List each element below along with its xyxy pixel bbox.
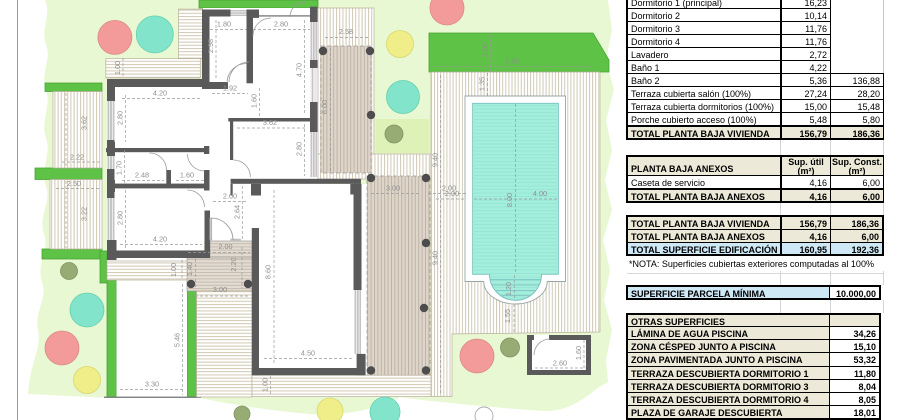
svg-text:2.00: 2.00 [481, 43, 490, 57]
svg-text:2.20: 2.20 [229, 257, 238, 271]
svg-text:7.55: 7.55 [505, 57, 519, 66]
svg-text:5.46: 5.46 [173, 333, 182, 347]
svg-text:6.00: 6.00 [320, 100, 329, 114]
svg-text:1.55: 1.55 [503, 309, 512, 323]
svg-text:1.60: 1.60 [250, 94, 259, 108]
svg-text:2.58: 2.58 [339, 27, 353, 36]
svg-text:1.00: 1.00 [113, 61, 122, 75]
svg-text:2.00: 2.00 [445, 189, 459, 198]
svg-text:4.50: 4.50 [301, 349, 315, 358]
svg-text:2.98: 2.98 [206, 39, 215, 53]
svg-text:1.00: 1.00 [169, 263, 178, 277]
svg-text:1.00: 1.00 [261, 378, 270, 392]
svg-text:3.30: 3.30 [145, 380, 159, 389]
svg-text:4.70: 4.70 [295, 63, 304, 77]
svg-text:3.00: 3.00 [213, 285, 227, 294]
svg-text:2.80: 2.80 [274, 20, 288, 29]
svg-text:1.60: 1.60 [180, 171, 194, 180]
svg-text:2.00: 2.00 [218, 242, 232, 251]
svg-text:8.00: 8.00 [505, 193, 514, 207]
svg-text:1.60: 1.60 [574, 346, 583, 360]
svg-text:2.22: 2.22 [70, 153, 84, 162]
svg-text:2.64: 2.64 [232, 205, 241, 219]
svg-text:9.40: 9.40 [431, 251, 440, 265]
svg-text:1.80: 1.80 [217, 20, 231, 29]
svg-text:9.40: 9.40 [431, 153, 440, 167]
svg-text:2.50: 2.50 [67, 179, 81, 188]
svg-text:1.70: 1.70 [115, 161, 124, 175]
svg-text:3.00: 3.00 [386, 184, 400, 193]
svg-text:2.00: 2.00 [223, 192, 237, 201]
svg-text:3.62: 3.62 [80, 116, 89, 130]
svg-text:1.35: 1.35 [478, 77, 487, 91]
svg-text:3.22: 3.22 [80, 207, 89, 221]
svg-text:2.80: 2.80 [116, 211, 125, 225]
svg-text:4.20: 4.20 [153, 89, 167, 98]
svg-text:1.20: 1.20 [504, 282, 513, 296]
svg-text:1.40: 1.40 [185, 262, 194, 276]
svg-text:4.00: 4.00 [533, 189, 547, 198]
svg-text:2.80: 2.80 [295, 142, 304, 156]
svg-text:1.92: 1.92 [223, 84, 237, 93]
svg-text:2.80: 2.80 [116, 111, 125, 125]
svg-text:2.60: 2.60 [553, 359, 567, 368]
svg-text:8.60: 8.60 [264, 265, 273, 279]
svg-text:2.48: 2.48 [135, 171, 149, 180]
svg-text:4.20: 4.20 [153, 235, 167, 244]
svg-text:3.62: 3.62 [263, 118, 277, 127]
